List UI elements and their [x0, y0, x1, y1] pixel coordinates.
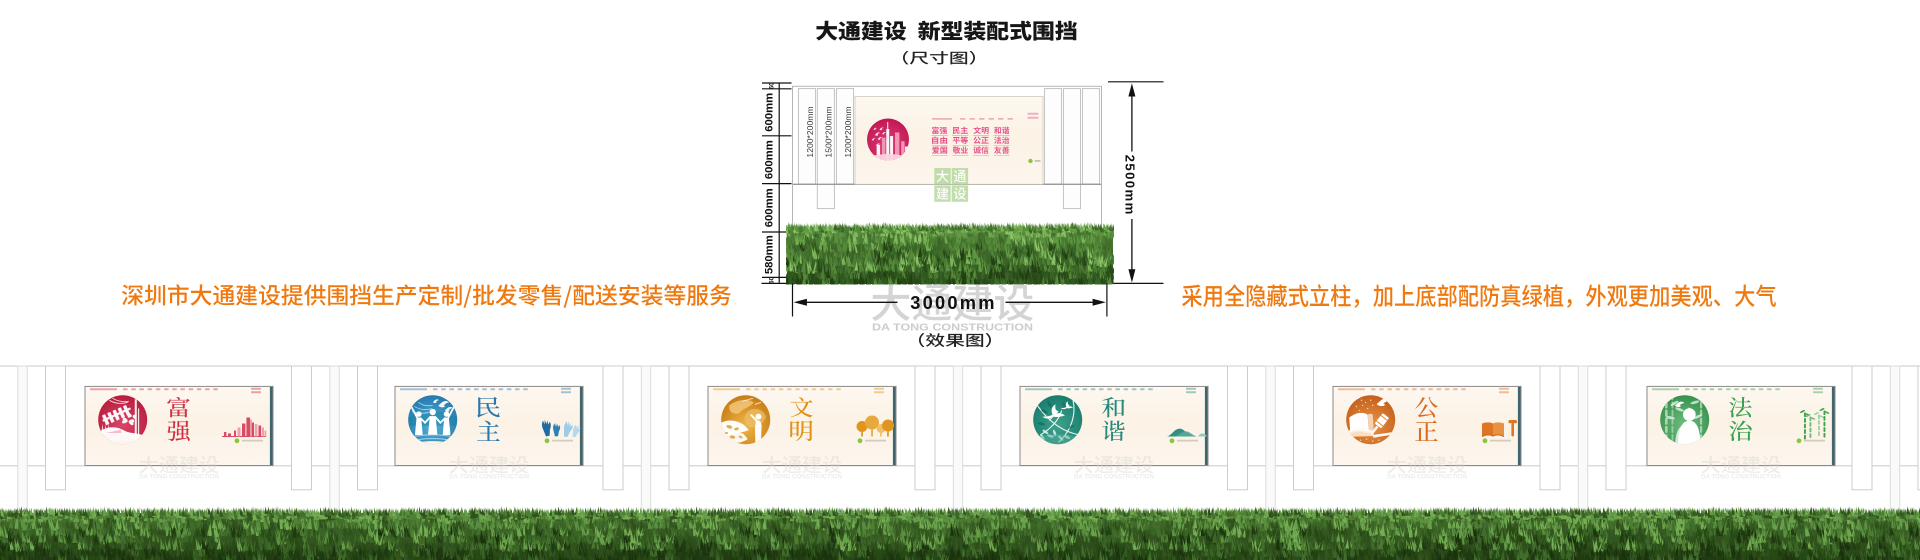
svg-text:580mm: 580mm	[763, 235, 775, 274]
svg-text:600mm: 600mm	[763, 93, 775, 132]
svg-text:DA TONG CONSTRUCTION: DA TONG CONSTRUCTION	[1701, 474, 1781, 481]
svg-text:1500*200mm: 1500*200mm	[824, 106, 834, 157]
svg-text:DA TONG CONSTRUCTION: DA TONG CONSTRUCTION	[762, 474, 842, 481]
svg-text:DA TONG CONSTRUCTION: DA TONG CONSTRUCTION	[872, 323, 1033, 334]
svg-text:DA TONG CONSTRUCTION: DA TONG CONSTRUCTION	[449, 474, 529, 481]
svg-text:2500mm: 2500mm	[1123, 155, 1138, 216]
svg-text:1200*200mm: 1200*200mm	[805, 106, 815, 157]
svg-text:60: 60	[769, 276, 776, 284]
svg-text:600mm: 600mm	[763, 140, 775, 179]
svg-text:60: 60	[769, 82, 776, 90]
svg-text:DA TONG CONSTRUCTION: DA TONG CONSTRUCTION	[1074, 474, 1154, 481]
svg-text:1200*200mm: 1200*200mm	[843, 106, 853, 157]
svg-text:600mm: 600mm	[763, 188, 775, 227]
svg-text:DA TONG CONSTRUCTION: DA TONG CONSTRUCTION	[139, 474, 219, 481]
svg-text:3000mm: 3000mm	[910, 292, 996, 313]
svg-text:DA TONG CONSTRUCTION: DA TONG CONSTRUCTION	[1387, 474, 1467, 481]
